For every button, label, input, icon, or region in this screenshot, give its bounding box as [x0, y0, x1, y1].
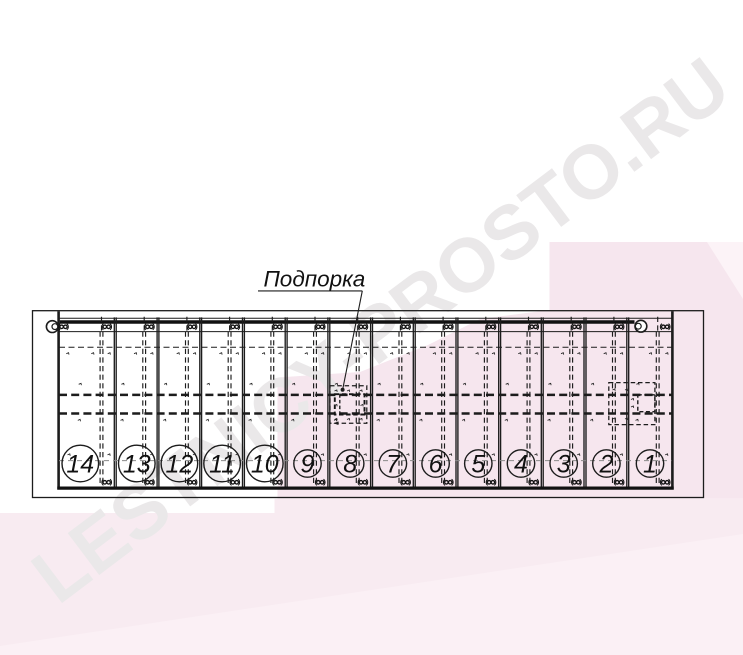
svg-text:1: 1 [643, 450, 657, 478]
svg-text:12: 12 [165, 450, 193, 478]
svg-text:13: 13 [123, 450, 151, 478]
svg-text:6: 6 [429, 450, 443, 478]
svg-text:10: 10 [251, 450, 279, 478]
svg-text:14: 14 [66, 450, 94, 478]
svg-text:7: 7 [386, 450, 401, 478]
svg-text:5: 5 [471, 450, 485, 478]
svg-text:8: 8 [343, 450, 357, 478]
svg-text:9: 9 [301, 450, 315, 478]
svg-text:2: 2 [598, 450, 613, 478]
svg-text:4: 4 [514, 450, 528, 478]
svg-text:11: 11 [209, 450, 235, 478]
svg-text:Подпорка: Подпорка [264, 267, 366, 292]
svg-text:3: 3 [557, 450, 571, 478]
